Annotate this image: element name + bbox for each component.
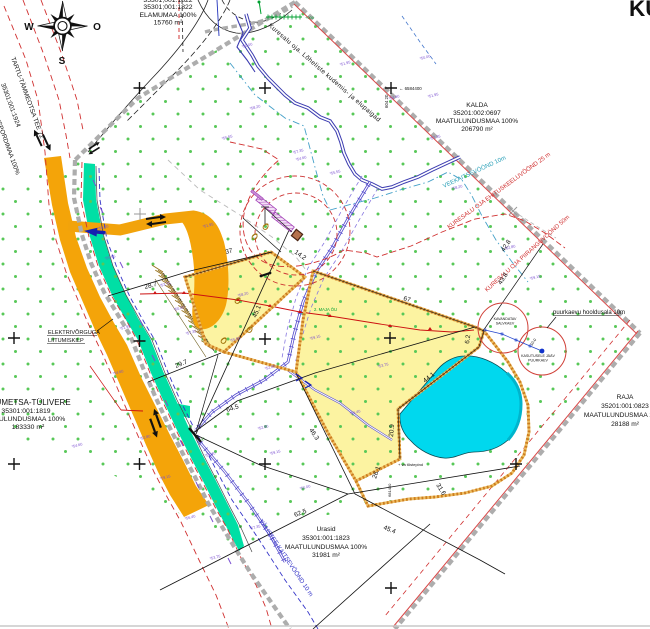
svg-text:35201:002:0697: 35201:002:0697 [453, 110, 501, 117]
svg-text:2. MAJA ÔU: 2. MAJA ÔU [314, 307, 337, 312]
svg-text:ELAMUMAA 100%: ELAMUMAA 100% [139, 12, 196, 19]
svg-text:15760 m²: 15760 m² [154, 20, 183, 27]
svg-text:183330 m²: 183330 m² [12, 424, 45, 431]
svg-text:KASUTUSELE JÄÄV: KASUTUSELE JÄÄV [521, 354, 555, 358]
svg-text:206790 m²: 206790 m² [461, 126, 493, 133]
svg-text:Urasid: Urasid [316, 526, 335, 533]
svg-text:35301;001:1822: 35301;001:1822 [143, 4, 192, 11]
svg-text:+ va tõstepind: + va tõstepind [398, 462, 423, 467]
svg-text:35301:001:1819: 35301:001:1819 [1, 408, 50, 415]
svg-text:← 6584400: ← 6584400 [399, 86, 422, 91]
svg-text:35201:001:0823: 35201:001:0823 [601, 403, 649, 410]
svg-text:SALVKAEV: SALVKAEV [496, 322, 515, 326]
svg-text:MAATULUNDUSMAA 100%: MAATULUNDUSMAA 100% [285, 544, 367, 551]
svg-text:MAATULUNDUSMAA 100%: MAATULUNDUSMAA 100% [436, 118, 518, 125]
svg-text:TULUNDUSMAA 100%: TULUNDUSMAA 100% [0, 416, 65, 423]
svg-text:6.2: 6.2 [464, 334, 472, 344]
svg-text:31981 m²: 31981 m² [312, 552, 341, 559]
svg-text:RAJA: RAJA [617, 394, 634, 401]
svg-text:35301:001:1823: 35301:001:1823 [302, 535, 350, 542]
svg-text:W: W [24, 22, 34, 33]
svg-text:S: S [59, 56, 66, 67]
svg-text:puurkaevu hooldusala 10m: puurkaevu hooldusala 10m [553, 310, 625, 316]
svg-text:28188 m²: 28188 m² [611, 421, 640, 428]
svg-text:O: O [93, 22, 101, 33]
svg-text:ELEKTRIVÕRGUGA: ELEKTRIVÕRGUGA [48, 329, 100, 336]
svg-text:681430: 681430 [387, 483, 392, 497]
svg-text:KAVANDATAV: KAVANDATAV [494, 317, 517, 321]
svg-text:+000: +000 [305, 15, 315, 20]
svg-text:LIITUMISKILP: LIITUMISKILP [48, 338, 84, 344]
svg-text:GUMETSA-TÜLIVERE: GUMETSA-TÜLIVERE [0, 398, 71, 407]
svg-text:MAATULUNDUSMAA 100%: MAATULUNDUSMAA 100% [584, 412, 650, 419]
svg-text:KALDA: KALDA [466, 102, 488, 109]
svg-text:PUURKAEV: PUURKAEV [528, 359, 548, 363]
svg-text:KU: KU [629, 0, 650, 21]
svg-text:20.9: 20.9 [388, 424, 396, 438]
